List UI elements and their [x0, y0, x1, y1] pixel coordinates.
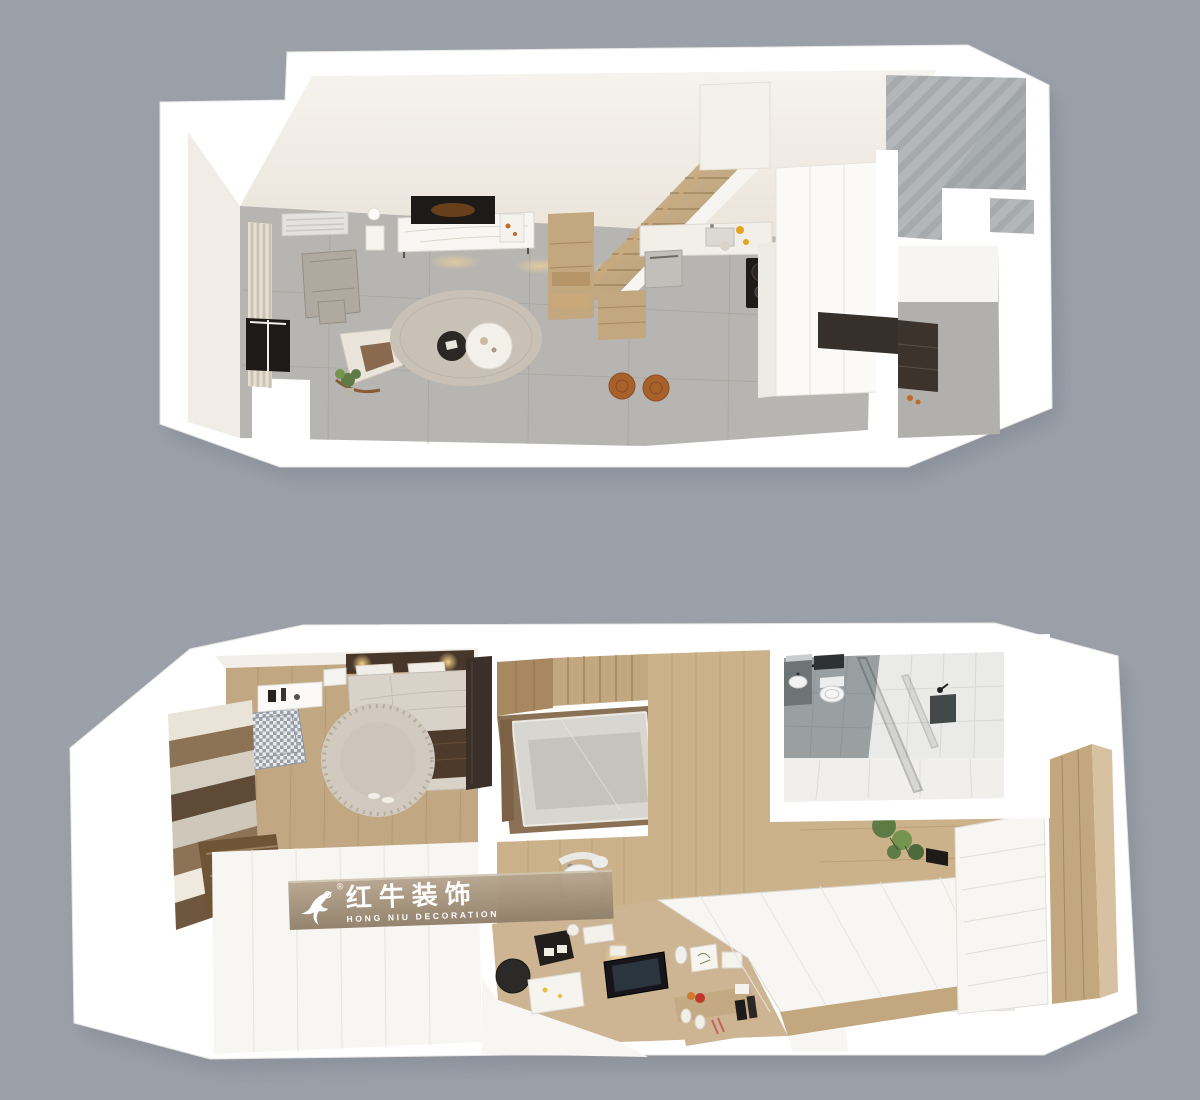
- small-shaft-niche: [990, 198, 1034, 234]
- wardrobe-wood-panel: [1048, 744, 1100, 1004]
- vanity-sink: [784, 654, 812, 706]
- tall-cabinet: [700, 82, 770, 170]
- notebook: [583, 924, 614, 944]
- bathroom: [770, 634, 1050, 822]
- tv-partition-panel: [466, 656, 492, 790]
- oven: [645, 250, 682, 288]
- registered-mark: ®: [337, 882, 344, 891]
- desk-clock: [567, 924, 579, 936]
- wall-pillar: [252, 378, 310, 440]
- brand-name-cn: 红牛装饰: [345, 880, 498, 911]
- horse-swoosh-icon: ®: [296, 885, 337, 926]
- render-canvas: ® 红牛装饰 HONG NIU DECORATION: [0, 0, 1200, 1100]
- range-hood-cabinet: [818, 312, 898, 354]
- recliner-armchair: [302, 250, 360, 324]
- understair-cabinet: [548, 212, 594, 320]
- tatami-platform-left: [212, 842, 482, 1054]
- shower-niche: [930, 694, 956, 724]
- air-conditioner: [282, 212, 348, 236]
- stool-chair: [496, 959, 530, 993]
- picture-frame: [690, 944, 718, 972]
- mirror-cabinet: [814, 654, 844, 670]
- loft-floor-plan: [70, 623, 1145, 1071]
- area-rug: [390, 290, 542, 386]
- floorplan-rendering: [0, 0, 1200, 1100]
- kitchen-island: [758, 162, 878, 398]
- landing-floor: [528, 732, 648, 810]
- stairwell: [497, 654, 662, 834]
- bedroom-rug: [321, 703, 435, 817]
- toilet: [820, 676, 844, 702]
- oval-mirror: [675, 946, 687, 964]
- poster-board: [528, 972, 584, 1014]
- upper-floor-plan: [160, 45, 1060, 479]
- closet-panels: [497, 658, 553, 716]
- sink: [706, 228, 734, 246]
- bottom-step-box: [598, 290, 646, 340]
- nightstand: [324, 668, 346, 686]
